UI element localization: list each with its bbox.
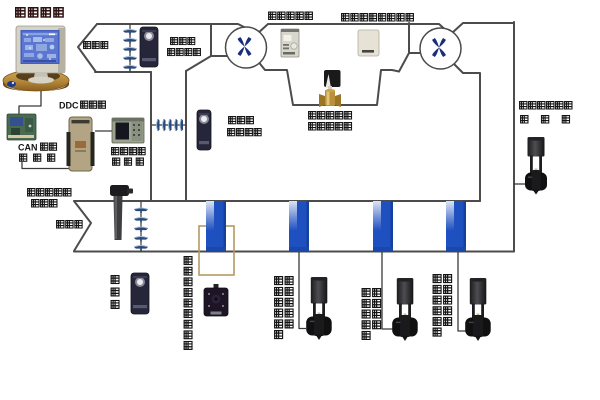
svg-text:CAN: CAN <box>18 143 38 153</box>
svg-text:DDC: DDC <box>59 101 79 111</box>
